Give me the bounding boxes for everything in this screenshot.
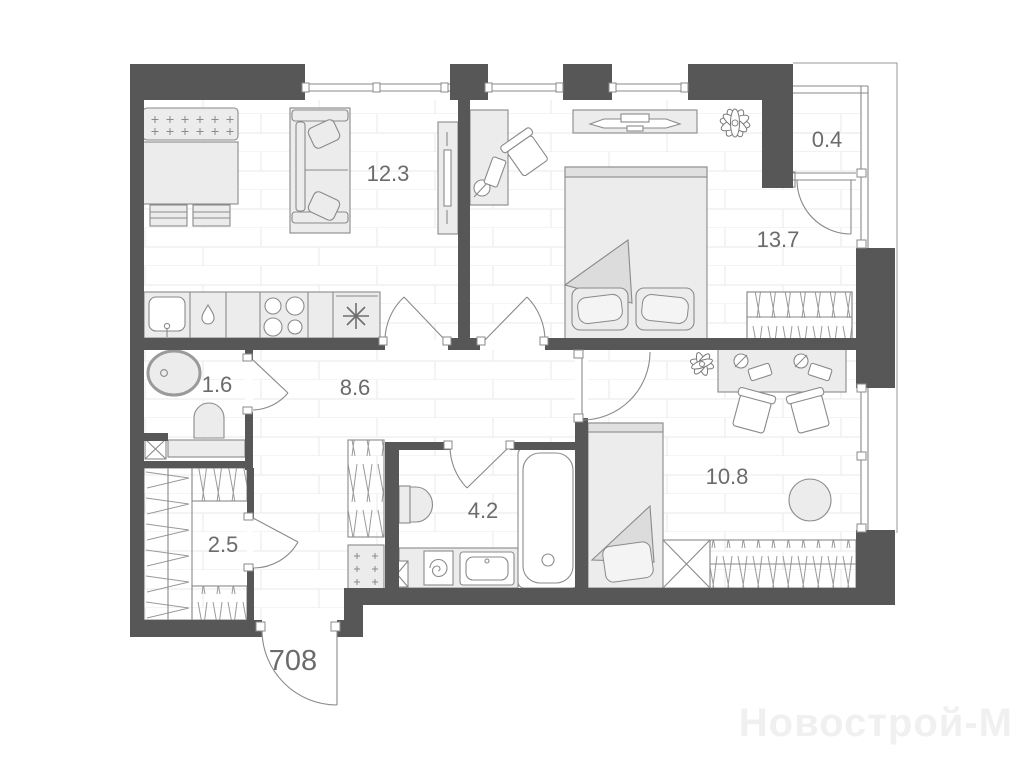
kitchen-counter bbox=[144, 292, 380, 338]
tv-panel bbox=[438, 122, 458, 234]
shoe-bench bbox=[348, 545, 384, 590]
label-bathroom: 4.2 bbox=[468, 498, 499, 523]
dining-chair bbox=[193, 205, 230, 226]
label-bedroom: 13.7 bbox=[757, 227, 800, 252]
dining-chair bbox=[150, 205, 187, 226]
window bbox=[485, 83, 563, 92]
washing-machine-icon bbox=[424, 551, 453, 585]
apartment-number: 708 bbox=[269, 645, 317, 677]
work-desk bbox=[718, 347, 846, 392]
label-storage: 2.5 bbox=[208, 532, 239, 557]
label-kids-room: 10.8 bbox=[706, 464, 749, 489]
single-bed bbox=[588, 423, 663, 588]
pillow bbox=[636, 288, 694, 330]
bedroom-desk bbox=[470, 110, 508, 205]
label-hallway: 8.6 bbox=[340, 375, 371, 400]
dining-table bbox=[143, 142, 238, 204]
toilet-icon bbox=[194, 403, 224, 438]
floorplan-page: 12.3 13.7 0.4 1.6 8.6 2.5 4.2 10.8 708 Н… bbox=[0, 0, 1024, 768]
hall-wardrobe bbox=[348, 440, 384, 537]
sofa bbox=[290, 108, 350, 233]
pillow bbox=[572, 288, 628, 330]
wardrobe bbox=[747, 292, 852, 342]
shelf-unit bbox=[192, 468, 247, 501]
dining-bench bbox=[143, 108, 238, 140]
shelf-unit bbox=[192, 586, 247, 620]
pouf-table bbox=[789, 479, 831, 521]
floorplan-svg: 12.3 13.7 0.4 1.6 8.6 2.5 4.2 10.8 708 Н… bbox=[0, 0, 1024, 768]
floor-hall bbox=[253, 350, 575, 442]
floor-corridor bbox=[253, 442, 350, 622]
window bbox=[609, 83, 688, 92]
label-balcony: 0.4 bbox=[812, 127, 843, 152]
wc-sink-icon bbox=[148, 351, 200, 395]
window bbox=[302, 83, 450, 92]
watermark: Новострой-М bbox=[739, 701, 1013, 745]
tv-stand bbox=[573, 110, 697, 133]
wardrobe bbox=[663, 540, 856, 588]
wc-shelf bbox=[168, 440, 245, 457]
bathroom-sink-icon bbox=[460, 552, 514, 585]
kitchen-sink-icon bbox=[149, 297, 185, 337]
label-living-kitchen: 12.3 bbox=[367, 161, 410, 186]
bathtub-icon bbox=[518, 448, 578, 588]
pillow bbox=[602, 541, 655, 583]
shaft-box bbox=[145, 439, 166, 459]
label-wc: 1.6 bbox=[202, 372, 233, 397]
toilet-icon bbox=[399, 486, 432, 523]
double-bed bbox=[565, 167, 707, 342]
